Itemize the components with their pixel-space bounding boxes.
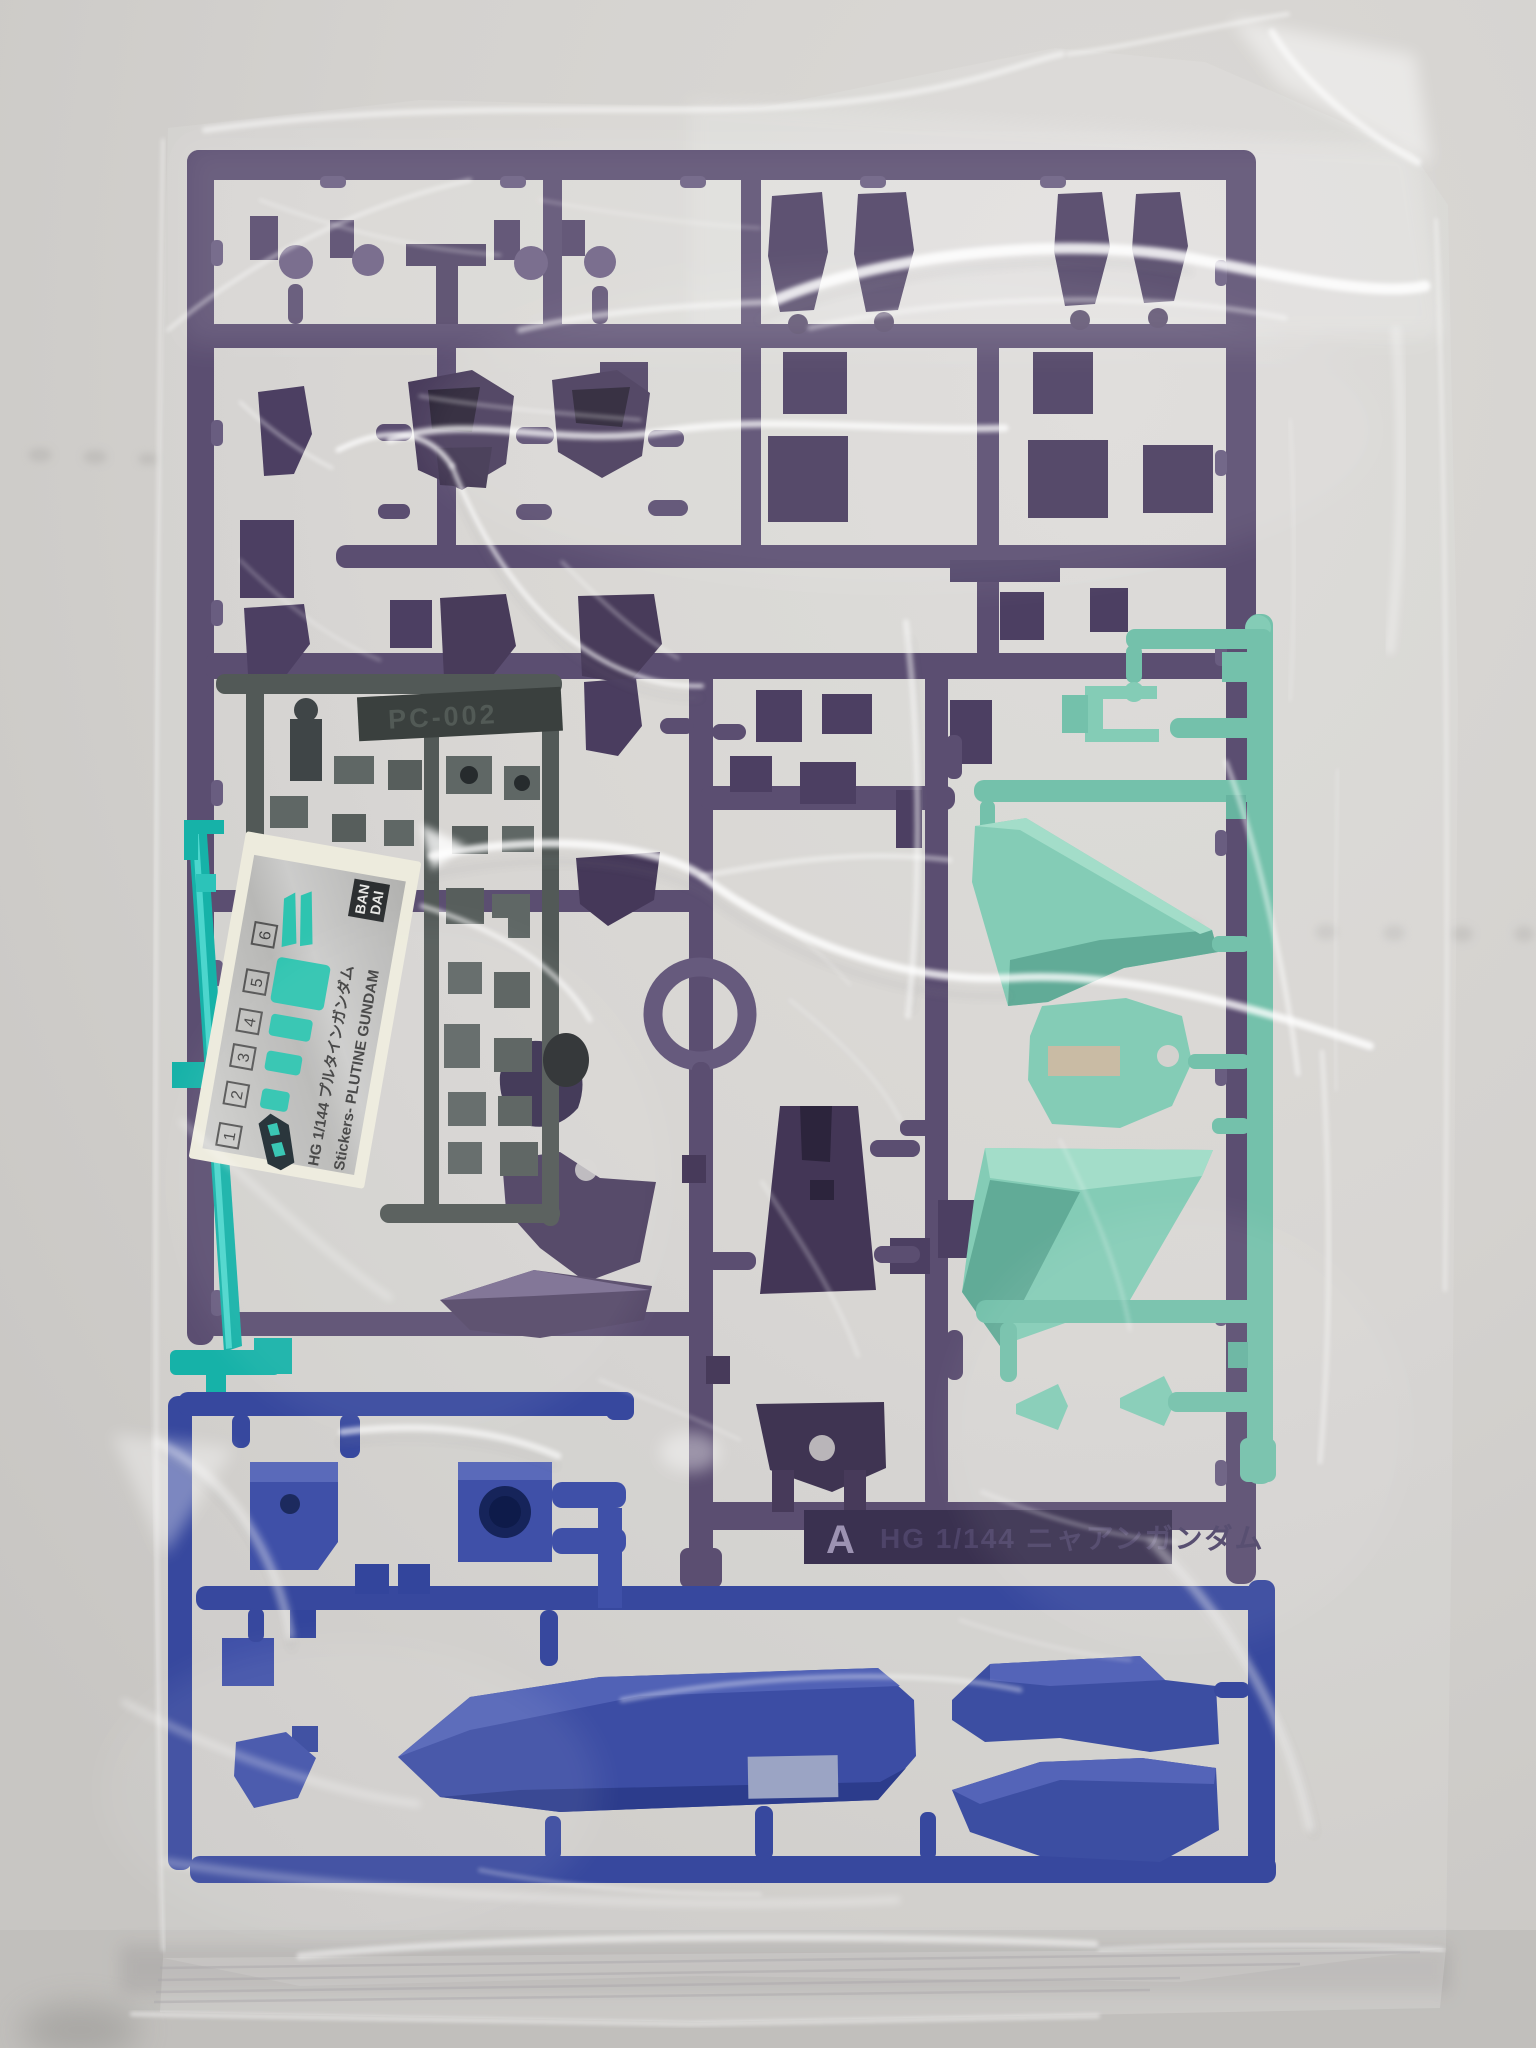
svg-text:A: A xyxy=(826,1518,855,1562)
svg-text:PC-002: PC-002 xyxy=(387,699,498,735)
